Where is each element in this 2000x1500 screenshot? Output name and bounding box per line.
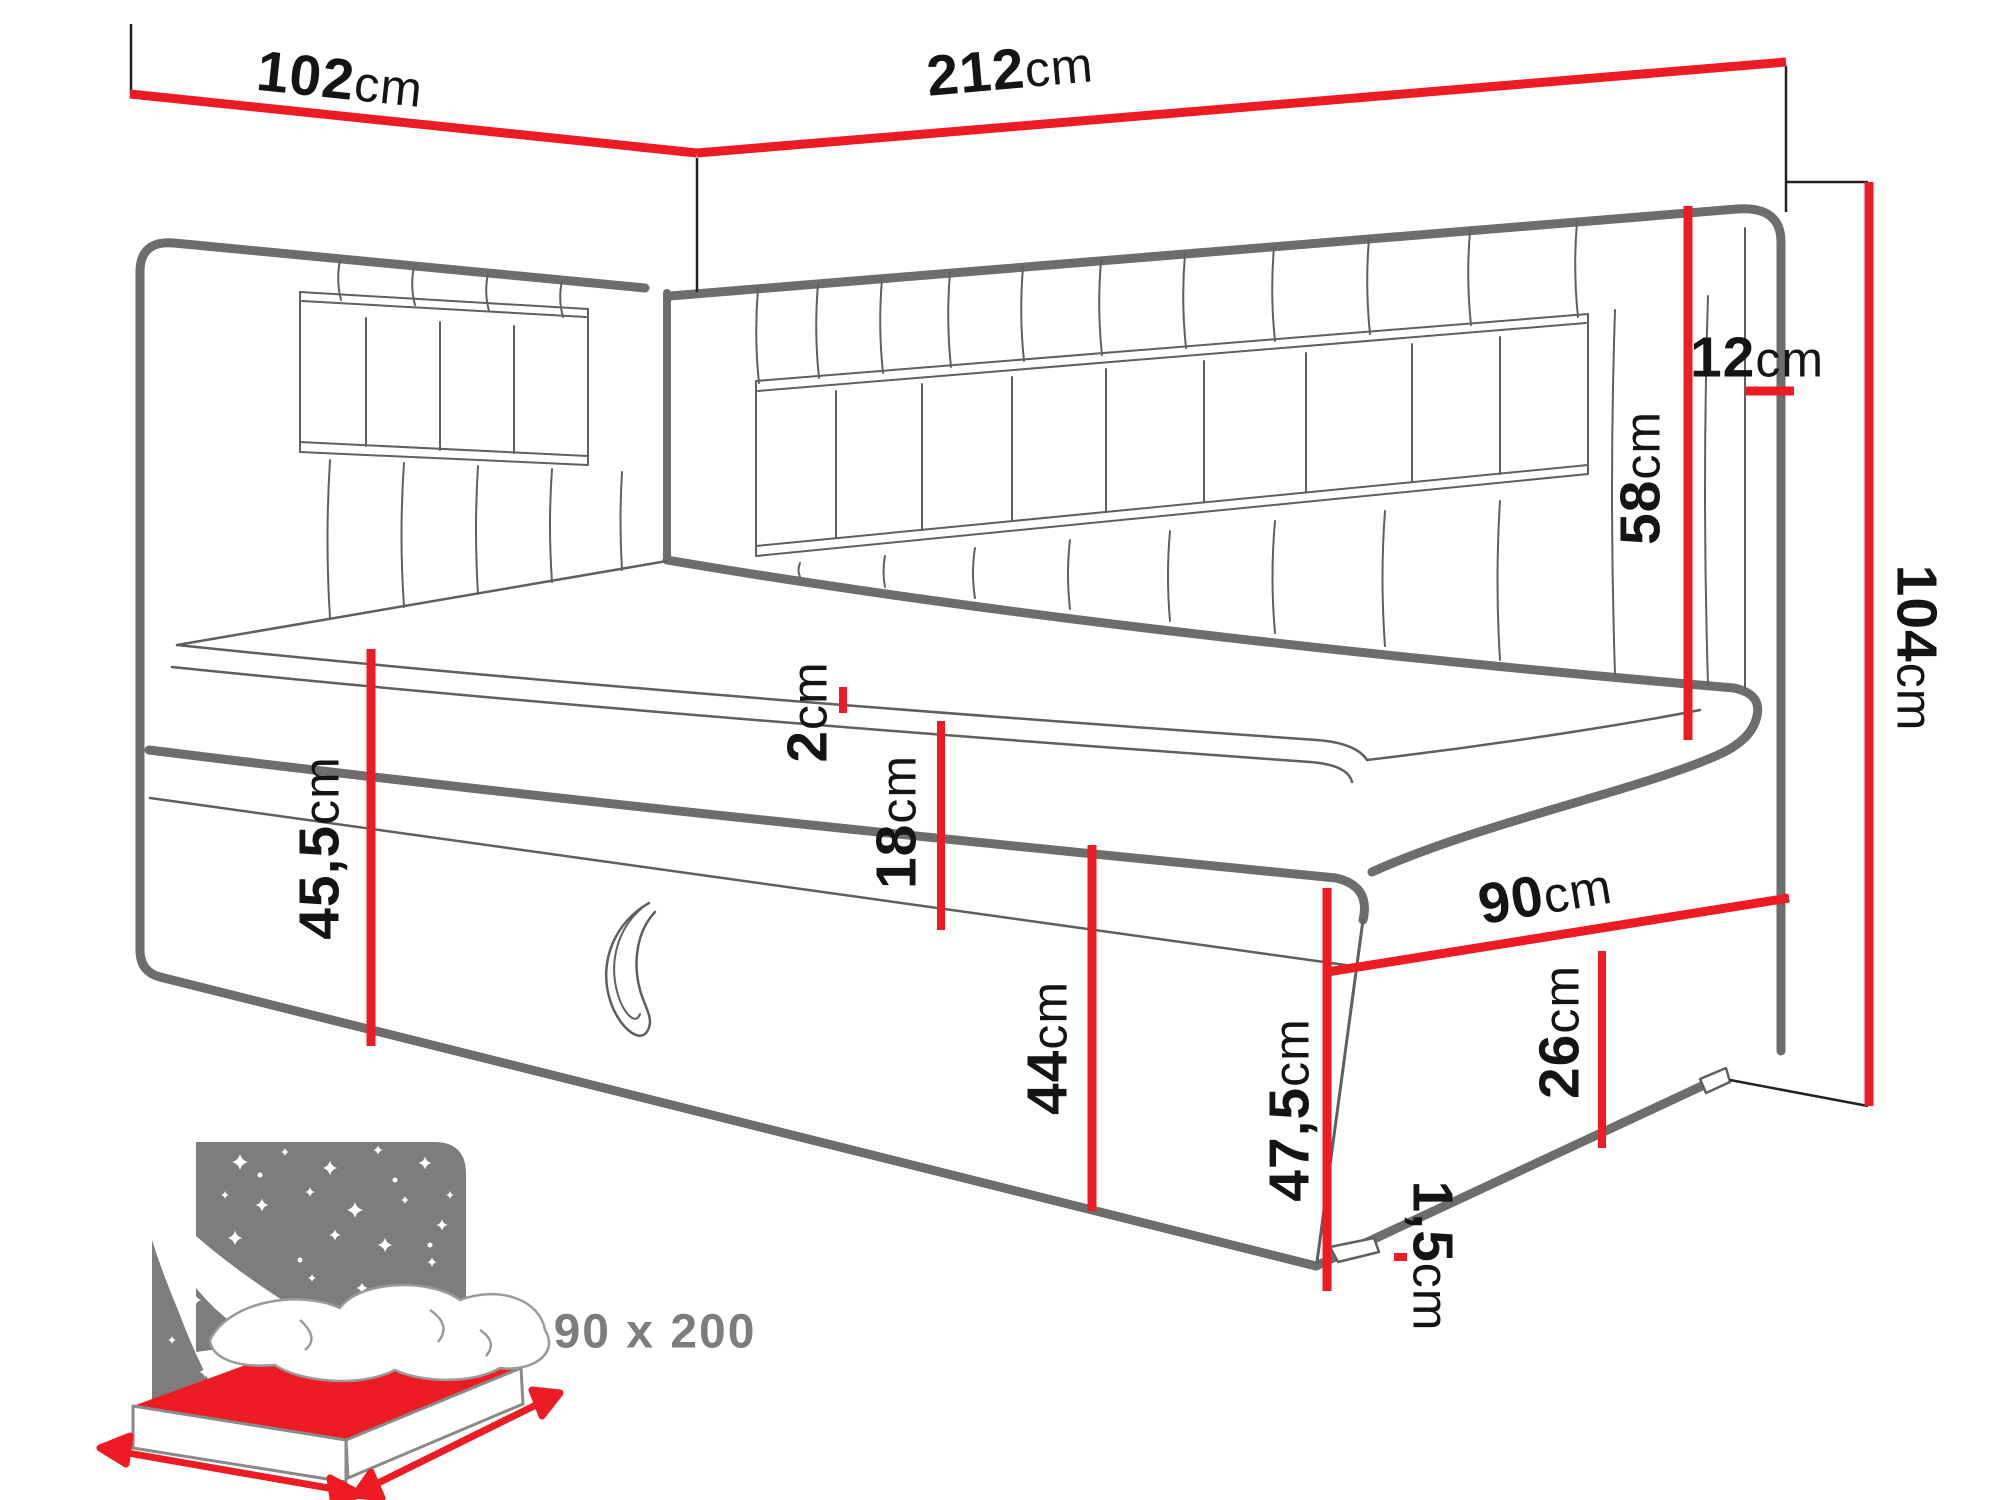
dim-unit: cm [871, 755, 927, 824]
dim-label-2: 2cm [780, 661, 837, 762]
headboard-left-outline [140, 243, 645, 952]
dim-value: 58 [1609, 480, 1673, 545]
dim-unit: cm [1022, 36, 1095, 98]
dim-value: 1,5 [1401, 1181, 1465, 1263]
dim-value: 212 [924, 36, 1027, 108]
dim-label-26: 26cm [1532, 965, 1589, 1099]
dim-unit: cm [1264, 1018, 1320, 1087]
dim-value: 102 [254, 39, 358, 113]
dim-label-47-5: 47,5cm [1262, 1018, 1319, 1202]
bed-drawing-thin [150, 228, 1745, 1262]
dim-label-1-5: 1,5cm [1404, 1181, 1461, 1332]
shelf-left [300, 292, 588, 465]
dim-value: 12 [1690, 326, 1755, 390]
dim-unit: cm [1539, 858, 1616, 925]
front-leg [1330, 1238, 1379, 1262]
extension-lines [131, 24, 1868, 1106]
dim-value: 26 [1528, 1034, 1592, 1099]
dim-unit: cm [1534, 965, 1590, 1034]
dim-value: 44 [1016, 1050, 1080, 1115]
dim-label-44: 44cm [1020, 981, 1077, 1115]
dim-value: 45,5 [288, 825, 352, 940]
surface-front-edge [177, 645, 1367, 760]
dim-value: 104 [1885, 565, 1949, 663]
surface-right-edge [1367, 710, 1700, 760]
inset-icon [100, 1142, 560, 1500]
dim-label-45-5: 45,5cm [292, 756, 349, 940]
surface-left-edge [177, 561, 667, 645]
dim-label-58: 58cm [1613, 411, 1670, 545]
dim-unit: cm [782, 661, 838, 730]
headboard-left-detail [300, 260, 622, 618]
dim-label-12: 12cm [1690, 330, 1824, 387]
dim-value: 18 [865, 824, 929, 889]
dim-value: 2 [776, 730, 840, 763]
dimension-diagram: 102cm 212cm 12cm 58cm 104cm 2cm 18cm 45,… [0, 0, 2000, 1500]
dim-line-212 [697, 62, 1786, 153]
dim-value: 90 [1474, 863, 1549, 937]
dim-unit: cm [1022, 981, 1078, 1050]
inset-size-label: 90 x 200 [554, 1305, 757, 1360]
dim-unit: cm [1615, 411, 1671, 480]
base-bottom-right-edge [1316, 1078, 1719, 1266]
right-leg [1700, 1068, 1730, 1093]
dim-unit: cm [1755, 332, 1824, 388]
dim-value: 47,5 [1258, 1087, 1322, 1202]
handle-icon-inner [614, 908, 642, 1019]
dim-unit: cm [1887, 663, 1943, 732]
dim-unit: cm [1403, 1263, 1459, 1332]
dim-label-18: 18cm [869, 755, 926, 889]
headboard-main-detail [756, 222, 1708, 684]
dim-label-104: 104cm [1888, 565, 1945, 732]
dim-unit: cm [352, 55, 426, 118]
bed-line-art [0, 0, 2000, 1500]
dim-unit: cm [294, 756, 350, 825]
